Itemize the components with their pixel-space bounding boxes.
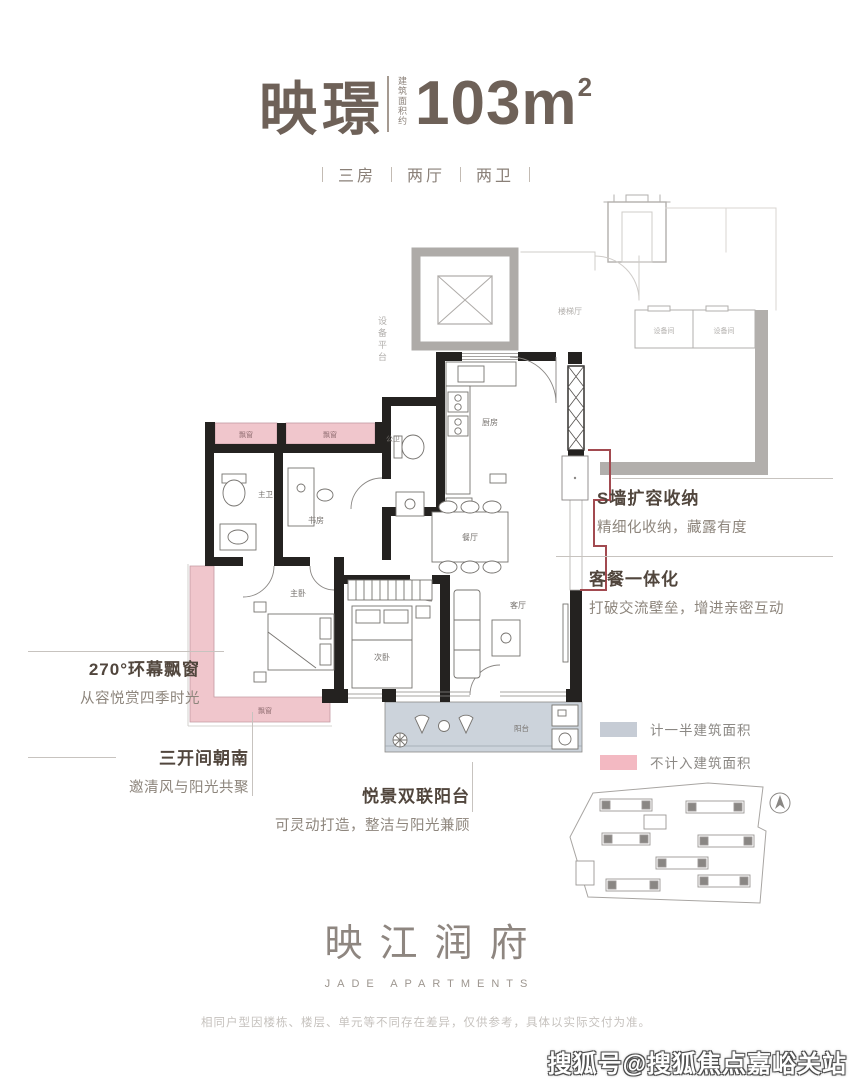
tag-rooms: 三房 xyxy=(338,162,376,186)
annotation-desc: 精细化收纳，藏露有度 xyxy=(597,516,747,537)
bay-window-label: 飘窗 xyxy=(323,430,337,439)
annotation-desc: 可灵动打造，整洁与阳光兼顾 xyxy=(275,814,470,835)
annotation-south-facing: 三开间朝南 邀清风与阳光共聚 xyxy=(129,744,249,797)
room-label-public-bath: 公卫 xyxy=(386,435,400,443)
equipment-platform-label: 设备平台 xyxy=(376,316,389,364)
leader-line xyxy=(28,651,224,652)
annotation-desc: 打破交流壁垒，增进亲密互动 xyxy=(589,597,784,618)
area-sup: 2 xyxy=(578,72,593,102)
poster-page: 映璟 建筑面积约 103m2 三房 两厅 两卫 xyxy=(0,0,852,1084)
tag-halls: 两厅 xyxy=(407,162,445,186)
legend-swatch-pink xyxy=(600,755,637,770)
legend-row-half-area: 计一半建筑面积 xyxy=(600,719,752,739)
room-label-living: 客厅 xyxy=(510,600,526,610)
room-label-kitchen: 厨房 xyxy=(482,417,498,427)
tag-separator xyxy=(529,167,530,182)
leader-line xyxy=(556,556,833,557)
leader-line xyxy=(28,757,116,758)
project-name-en: JADE APARTMENTS xyxy=(0,978,852,990)
bay-window-label: 飘窗 xyxy=(258,706,272,715)
gray-wall xyxy=(755,310,768,462)
annotation-title: 三开间朝南 xyxy=(129,744,249,769)
furniture xyxy=(220,362,578,749)
annotation-desc: 从容悦赏四季时光 xyxy=(80,687,200,708)
room-label-balcony: 阳台 xyxy=(514,723,529,733)
tag-separator xyxy=(391,167,392,182)
header-divider xyxy=(387,76,389,132)
annotation-title: S墙扩容收纳 xyxy=(597,484,747,509)
north-compass-icon xyxy=(770,793,790,813)
equipment-room-label: 设备间 xyxy=(654,326,675,335)
tag-baths: 两卫 xyxy=(476,162,514,186)
area-value: 103m xyxy=(415,69,578,138)
elevator xyxy=(416,252,514,346)
equipment-rooms xyxy=(635,306,755,348)
disclaimer: 相同户型因楼栋、楼层、单元等不同存在差异，仅供参考，具体以实际交付为准。 xyxy=(0,1014,852,1030)
header: 映璟 建筑面积约 103m2 三房 两厅 两卫 xyxy=(0,62,852,186)
annotation-bay-window: 270°环幕飘窗 从容悦赏四季时光 xyxy=(80,655,200,708)
room-label-dining: 餐厅 xyxy=(462,533,478,542)
roof-tower xyxy=(604,195,670,262)
leader-line xyxy=(612,478,833,479)
site-plan xyxy=(558,775,796,920)
legend-label: 不计入建筑面积 xyxy=(650,752,752,772)
stair-hall-label: 楼梯厅 xyxy=(558,306,582,316)
annotation-title: 客餐一体化 xyxy=(589,565,784,590)
watermark: 搜狐号@搜狐焦点嘉峪关站 xyxy=(548,1044,847,1079)
site-buildings xyxy=(576,799,754,891)
leader-line xyxy=(252,712,253,796)
room-label-study: 书房 xyxy=(308,515,324,525)
unit-name: 映璟 xyxy=(259,62,385,146)
annotation-title: 270°环幕飘窗 xyxy=(80,655,200,680)
bay-window-label: 飘窗 xyxy=(239,430,253,439)
layout-tags: 三房 两厅 两卫 xyxy=(322,162,530,186)
tag-separator xyxy=(322,167,323,182)
annotation-s-wall: S墙扩容收纳 精细化收纳，藏露有度 xyxy=(597,484,747,537)
annotation-dining-living: 客餐一体化 打破交流壁垒，增进亲密互动 xyxy=(589,565,784,618)
legend-row-excluded: 不计入建筑面积 xyxy=(600,752,752,772)
room-label-master-bedroom: 主卧 xyxy=(290,588,306,598)
project-name: 映江润府 xyxy=(0,912,852,967)
equipment-room-label: 设备间 xyxy=(714,326,735,335)
tag-separator xyxy=(460,167,461,182)
legend-swatch-gray xyxy=(600,722,637,737)
room-label-second-bedroom: 次卧 xyxy=(374,652,390,662)
room-label-master-bath: 主卫 xyxy=(258,489,273,499)
unit-area: 103m2 xyxy=(415,73,593,135)
gray-wall xyxy=(600,462,768,475)
annotation-title: 悦景双联阳台 xyxy=(275,782,470,807)
area-note: 建筑面积约 xyxy=(396,76,409,132)
annotation-desc: 邀清风与阳光共聚 xyxy=(129,776,249,797)
annotation-balcony: 悦景双联阳台 可灵动打造，整洁与阳光兼顾 xyxy=(275,782,470,835)
leader-line xyxy=(472,762,473,812)
floor-plan: 楼梯厅 设备间 设备间 飘窗 飘窗 飘窗 xyxy=(170,192,790,770)
project-logo: 映江润府 JADE APARTMENTS xyxy=(0,912,852,990)
legend-label: 计一半建筑面积 xyxy=(650,719,752,739)
